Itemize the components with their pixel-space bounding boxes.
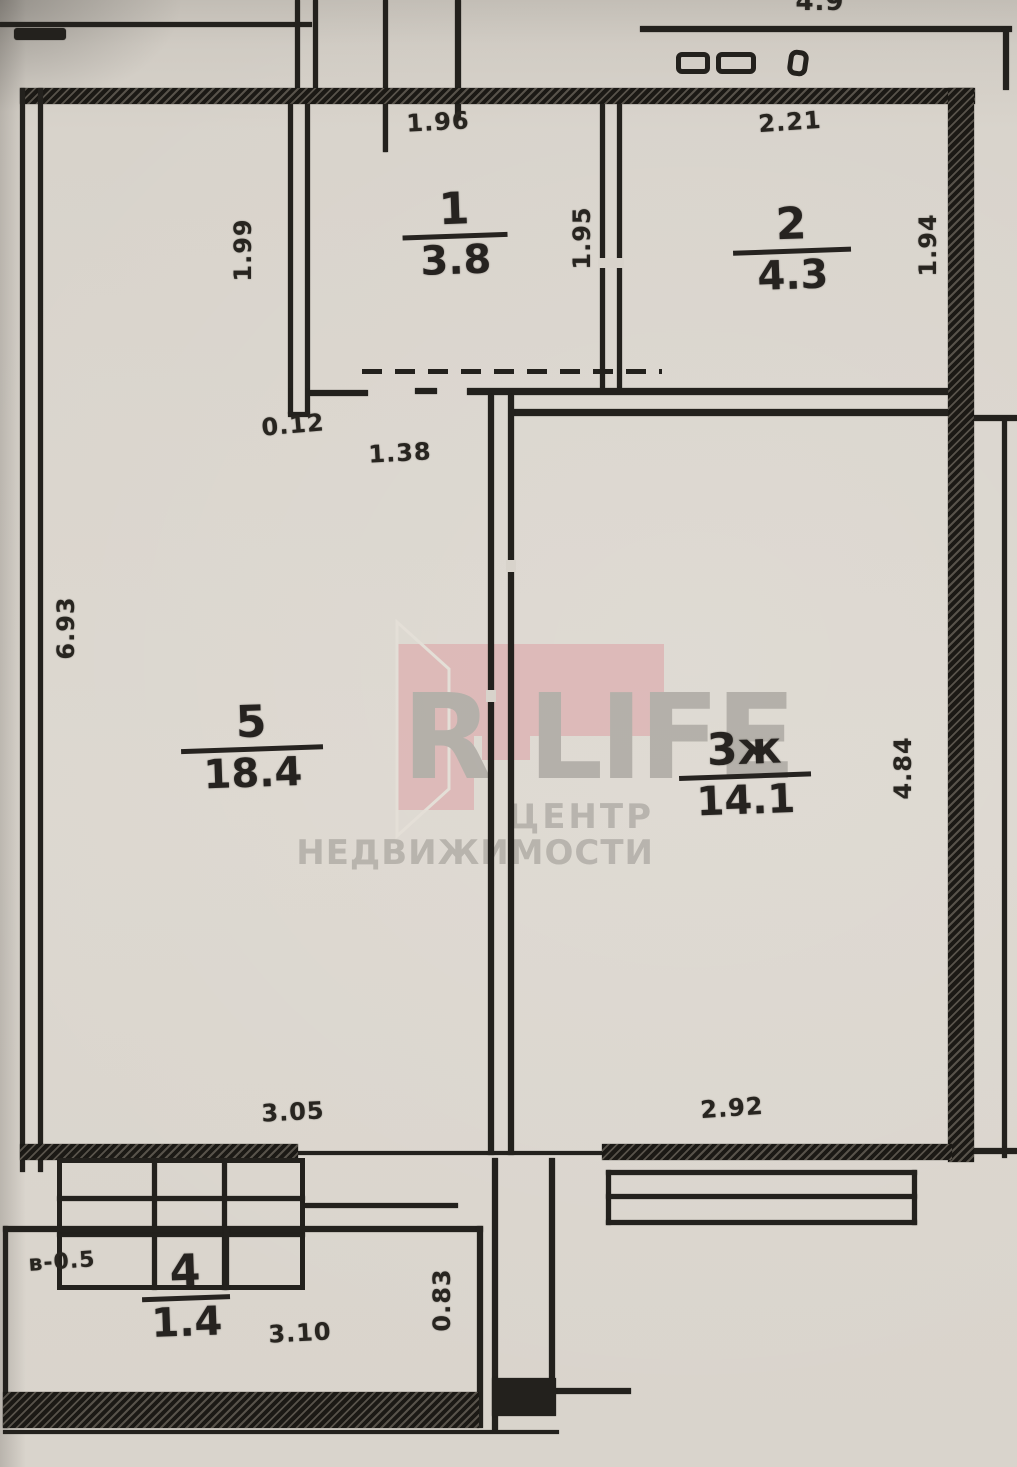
dim-balcony-width: 3.10 — [268, 1317, 333, 1348]
room-label-4: 4 1.4 — [140, 1249, 231, 1345]
wall-outer-left-b — [38, 88, 43, 1172]
wall-top-right-line — [640, 26, 1012, 32]
dim-opening: 1.38 — [368, 437, 433, 468]
wall-outer-bottom-right — [602, 1144, 952, 1160]
wall-room35-divider-b — [508, 395, 514, 1155]
wall-room3-top-a — [467, 388, 948, 395]
wall-room1-bottom — [310, 390, 368, 396]
wall-top-stub-b — [313, 0, 318, 88]
watermark-sub2: НЕДВИЖИМОСТИ — [296, 833, 654, 873]
vent-symbol-1 — [676, 52, 710, 74]
wall-joint-mark-2 — [506, 560, 516, 572]
balcony-top-edge — [3, 1226, 483, 1232]
window-sill-extension — [305, 1203, 458, 1208]
wall-top-left-line — [0, 22, 312, 27]
dim-top-partial: 4.9 — [795, 0, 844, 17]
room-label-3: 3ж 14.1 — [677, 726, 812, 823]
dim-room1-width: 1.96 — [406, 106, 471, 137]
wall-balcony-shaft-b — [549, 1158, 555, 1392]
room-5-area: 18.4 — [181, 751, 324, 797]
window-right-line-3 — [606, 1220, 917, 1225]
wall-right-ext-bottom — [974, 1148, 1017, 1154]
window-sill-block — [14, 28, 66, 40]
room-label-5: 5 18.4 — [179, 699, 324, 796]
wall-room35-divider-a — [488, 395, 494, 1155]
wall-bottom-opening-line — [298, 1151, 602, 1155]
room-2-number: 2 — [731, 202, 850, 248]
room-1-area: 3.8 — [403, 239, 509, 283]
balcony-shaft-block — [492, 1378, 556, 1416]
wall-end-tick — [415, 388, 437, 394]
dimension-tick — [383, 104, 387, 152]
dim-left-strip-height: 1.99 — [229, 218, 257, 281]
dim-room5-width: 3.05 — [261, 1096, 326, 1127]
wall-joint-mark — [598, 258, 624, 268]
room-4-area: 1.4 — [142, 1301, 231, 1345]
wall-room12-divider-b — [617, 104, 622, 390]
room-3-area: 14.1 — [679, 778, 812, 823]
dim-room3-width: 2.92 — [699, 1092, 764, 1124]
window-grid-bar-2 — [57, 1232, 305, 1237]
wall-outer-left-a — [20, 88, 25, 1172]
window-right-line-2 — [606, 1194, 917, 1199]
dim-room1-height: 1.95 — [568, 206, 596, 269]
wall-outer-right — [948, 88, 974, 1162]
wall-right-ext-vert — [1002, 418, 1007, 1158]
vent-symbol-2 — [716, 52, 756, 74]
dim-room2-width: 2.21 — [757, 106, 822, 138]
room-label-1: 1 3.8 — [401, 187, 509, 283]
wall-top-stub-a — [295, 0, 300, 88]
room-4-number: 4 — [140, 1249, 229, 1294]
dim-room5-height: 6.93 — [52, 596, 80, 659]
wall-joint-mark-3 — [486, 690, 496, 702]
watermark-sub1: ЦЕНТР — [508, 797, 654, 837]
balcony-bottom-wall — [3, 1392, 479, 1428]
wall-room1-left-b — [305, 104, 310, 390]
wall-room12-divider-a — [600, 104, 605, 390]
room-label-2: 2 4.3 — [731, 202, 852, 299]
wall-room1-left-a — [288, 104, 293, 390]
wall-right-ext-top — [974, 415, 1017, 421]
watermark-brand-left: R — [402, 668, 493, 806]
room-3-number: 3ж — [677, 726, 810, 772]
wall-balcony-shaft-foot — [549, 1388, 631, 1394]
dim-balcony-depth: 0.83 — [428, 1268, 456, 1331]
wall-room3-top-b — [513, 409, 948, 416]
window-right-line-1 — [606, 1170, 917, 1175]
floorplan-photo: { "watermark": { "brand_left": "R", "bra… — [0, 0, 1017, 1467]
room-5-number: 5 — [179, 699, 322, 746]
wall-outer-top — [20, 88, 975, 104]
wall-top-right-corner — [1003, 28, 1009, 90]
dim-room3-height: 4.84 — [889, 736, 917, 799]
balcony-bottom-line — [3, 1430, 559, 1434]
room-2-area: 4.3 — [733, 253, 852, 298]
room-1-number: 1 — [401, 187, 507, 232]
dim-wall-stub: 0.12 — [260, 408, 325, 441]
window-grid-bar-1 — [57, 1196, 305, 1201]
dim-room2-height: 1.94 — [914, 213, 942, 276]
dim-balcony-note: в-0.5 — [28, 1247, 97, 1277]
